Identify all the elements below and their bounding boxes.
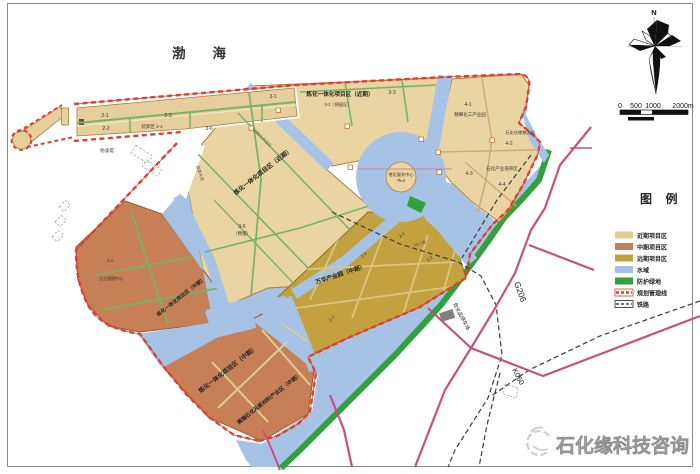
svg-text:炼化一体化项目区（近期）: 炼化一体化项目区（近期） — [306, 90, 373, 98]
svg-text:3-2（预留区）: 3-2（预留区） — [325, 101, 352, 108]
svg-text:渤海: 渤海 — [172, 45, 253, 61]
svg-text:防波堤: 防波堤 — [100, 147, 114, 154]
svg-text:图例: 图例 — [640, 191, 691, 206]
svg-text:3-3: 3-3 — [388, 90, 395, 96]
svg-text:企业管理中心: 企业管理中心 — [99, 275, 123, 281]
svg-text:石化缘科技咨询: 石化缘科技咨询 — [555, 434, 689, 457]
svg-text:3-6: 3-6 — [238, 224, 245, 230]
svg-text:3-1: 3-1 — [269, 94, 276, 100]
svg-text:石化产业培育区: 石化产业培育区 — [486, 165, 518, 172]
svg-text:中期项目区: 中期项目区 — [637, 244, 667, 252]
svg-text:4-2: 4-2 — [505, 141, 512, 147]
svg-text:4-1: 4-1 — [464, 102, 471, 108]
svg-text:1-1: 1-1 — [107, 258, 114, 263]
svg-text:远期项目区: 远期项目区 — [637, 255, 667, 263]
svg-text:0: 0 — [618, 103, 622, 110]
svg-text:近期项目区: 近期项目区 — [637, 232, 667, 240]
svg-text:装卸区 2-4: 装卸区 2-4 — [141, 123, 163, 130]
svg-text:2-3: 2-3 — [164, 113, 171, 119]
svg-text:4-4: 4-4 — [498, 182, 505, 188]
svg-text:1000: 1000 — [645, 103, 661, 110]
svg-text:精细化工产业园: 精细化工产业园 — [454, 111, 486, 118]
svg-text:规划管理线: 规划管理线 — [637, 290, 667, 298]
svg-text:铁路: 铁路 — [637, 301, 650, 309]
svg-text:7k㎡: 7k㎡ — [397, 177, 406, 183]
svg-text:2000m: 2000m — [672, 103, 694, 110]
svg-text:500: 500 — [630, 103, 642, 110]
svg-text:2-2: 2-2 — [102, 126, 109, 132]
svg-text:N: N — [651, 8, 656, 17]
svg-text:防护绿地: 防护绿地 — [637, 278, 661, 286]
svg-text:（预留）: （预留） — [233, 230, 251, 237]
svg-text:水域: 水域 — [637, 267, 649, 275]
svg-text:2-1: 2-1 — [101, 113, 108, 119]
svg-text:港区服务中心: 港区服务中心 — [388, 171, 414, 178]
svg-text:3-6: 3-6 — [205, 126, 212, 132]
svg-text:石化仓储物流园: 石化仓储物流园 — [505, 129, 534, 136]
svg-text:4-3: 4-3 — [465, 171, 472, 177]
